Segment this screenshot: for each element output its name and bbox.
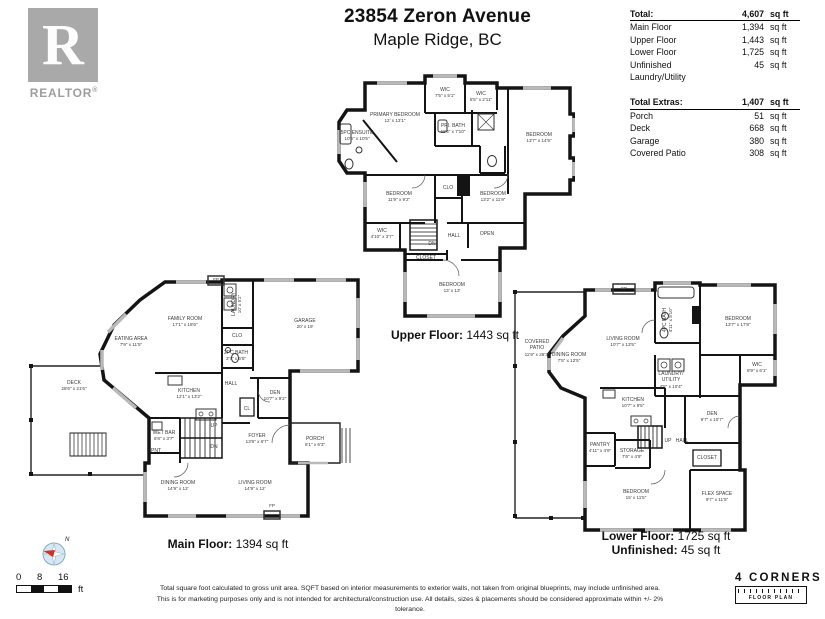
- scale-unit: ft: [78, 584, 83, 595]
- room-label: WIC7'5" x 5'1": [435, 87, 455, 99]
- room-label: 5PC ENSUITE10'6" x 10'5": [341, 130, 374, 142]
- table-row: Deck668sq ft: [630, 122, 800, 134]
- room-label: FP: [269, 503, 275, 509]
- lower-floor-plan: COVERED PATIO11'9" x 26'3" DINING ROOM7'…: [505, 276, 777, 556]
- realtor-logo: R REALTOR®: [28, 8, 100, 100]
- area-summary-table: Total: 4,607 sq ft Main Floor1,394sq ft …: [630, 8, 800, 159]
- main-floor-drawing: [28, 270, 378, 562]
- room-label: BEDROOM13'2" x 11'9": [480, 191, 506, 203]
- room-label: FLEX SPACE9'7" x 11'5": [702, 491, 732, 503]
- registered-mark: ®: [92, 87, 98, 94]
- room-label: BEDROOM11'9" x 9'2": [386, 191, 412, 203]
- room-label: BEDROOM15' x 11'5": [623, 489, 649, 501]
- four-corners-sub: FLOOR PLAN: [736, 595, 806, 601]
- chimney: [457, 176, 470, 196]
- lower-floor-caption: Lower Floor: 1725 sq ft Unfinished: 45 s…: [560, 530, 772, 557]
- room-label: WET BAR6'8" x 3'7": [153, 430, 176, 442]
- table-row: Porch51sq ft: [630, 110, 800, 122]
- room-label: HALL: [225, 381, 238, 387]
- room-label: BEDROOM13'7" x 14'9": [526, 132, 552, 144]
- chimney: [692, 306, 700, 324]
- room-label: DEN10'7" x 9'2": [264, 390, 287, 402]
- room-label: PORCH8'1" x 6'3": [305, 436, 325, 448]
- room-label: DN: [210, 444, 217, 450]
- room-label: FP: [621, 286, 627, 292]
- room-label: DINING ROOM7'5" x 12'5": [552, 352, 586, 364]
- compass-north-label: N: [65, 537, 69, 543]
- ruler-ticks-icon: [738, 589, 804, 593]
- room-label: CLO: [232, 333, 242, 339]
- room-label: OPEN: [480, 231, 494, 237]
- room-label: GARAGE20' x 19': [294, 318, 315, 330]
- city-line: Maple Ridge, BC: [250, 30, 625, 50]
- realtor-logo-icon: R: [28, 8, 98, 82]
- room-label: DN: [428, 241, 435, 247]
- page-title: 23854 Zeron Avenue Maple Ridge, BC: [250, 6, 625, 50]
- room-label: COVERED PATIO11'9" x 26'3": [518, 339, 556, 357]
- scale-bar-graphic: [16, 585, 72, 593]
- table-row-total: Total: 4,607 sq ft: [630, 8, 800, 21]
- room-label: LIVING ROOM10'7" x 13'5": [606, 336, 639, 348]
- scale-tick-8: 8: [37, 572, 42, 583]
- main-floor-plan: FAMILY ROOM17'1" x 18'6" EATING AREA7'9"…: [28, 270, 378, 562]
- room-label: 2PC BATH3'7" x 6'5": [224, 350, 248, 362]
- room-label: FAMILY ROOM17'1" x 18'6": [168, 316, 202, 328]
- disclaimer-line-1: Total square foot calculated to gross un…: [145, 584, 675, 595]
- room-label: PRIMARY BEDROOM12' x 13'1": [370, 112, 420, 124]
- realtor-logo-text: REALTOR®: [28, 86, 100, 100]
- room-label: CL: [244, 406, 250, 412]
- room-label: CLOSET: [416, 255, 436, 261]
- scale-bar: 0 8 16 ft: [16, 572, 116, 593]
- room-label: EATING AREA7'9" x 11'5": [115, 336, 148, 348]
- room-label: 4PC BATH4'11" x 8'10": [662, 308, 674, 333]
- realtor-r: R: [42, 16, 84, 74]
- room-label: DINING ROOM14'9" x 12': [161, 480, 195, 492]
- room-label: WIC5'5" x 2'11": [470, 91, 492, 103]
- table-row: Lower Floor1,725sq ft: [630, 46, 800, 58]
- table-row: Upper Floor1,443sq ft: [630, 34, 800, 46]
- four-corners-logo: 4 CORNERS FLOOR PLAN: [735, 572, 807, 604]
- scale-tick-0: 0: [16, 572, 21, 583]
- room-label: WIC4'10" x 3'7": [371, 228, 394, 240]
- room-label: FOYER13'6" x 6'7": [246, 433, 269, 445]
- disclaimer-line-2: This is for marketing purposes only and …: [145, 595, 675, 616]
- compass-icon: N: [40, 538, 74, 570]
- room-label: HALL: [448, 233, 461, 239]
- exterior-walls: [100, 280, 358, 516]
- four-corners-box: FLOOR PLAN: [735, 586, 807, 604]
- room-label: PNT: [151, 448, 161, 454]
- room-label: PRI. BATH11'4" x 7'10": [441, 123, 466, 135]
- room-label: BEDROOM13' x 13': [439, 282, 465, 294]
- room-label: HALL: [676, 438, 689, 444]
- floor-plan-sheet: R REALTOR® 23854 Zeron Avenue Maple Ridg…: [0, 0, 825, 619]
- four-corners-name: 4 CORNERS: [735, 572, 807, 584]
- table-row: Covered Patio308sq ft: [630, 147, 800, 159]
- address-line: 23854 Zeron Avenue: [250, 6, 625, 28]
- room-label: FP: [213, 277, 219, 283]
- scale-tick-16: 16: [58, 572, 69, 583]
- room-label: UP: [211, 423, 218, 429]
- room-label: CLOSET: [697, 455, 717, 461]
- table-row: Unfinished Laundry/Utility45sq ft: [630, 59, 800, 84]
- room-label: BEDROOM13'7" x 17'8": [725, 316, 751, 328]
- table-row-extras-total: Total Extras: 1,407 sq ft: [630, 96, 800, 109]
- room-label: KITCHEN12'1" x 13'2": [176, 388, 201, 400]
- room-label: STORAGE7'6" x 4'9": [620, 448, 644, 460]
- room-label: KITCHEN10'7" x 9'5": [622, 397, 645, 409]
- table-row: Main Floor1,394sq ft: [630, 21, 800, 33]
- room-label: LAUNDRY/ UTILITY4'5" x 10'4": [652, 371, 690, 389]
- room-label: LAUNDRY10' x 5'2": [231, 292, 243, 316]
- room-label: UP: [665, 438, 672, 444]
- room-label: LIVING ROOM14'9" x 12': [238, 480, 271, 492]
- main-floor-caption: Main Floor: 1394 sq ft: [118, 538, 338, 552]
- table-row: Garage380sq ft: [630, 135, 800, 147]
- room-label: PANTRY4'11" x 4'9": [589, 442, 611, 454]
- room-label: WIC8'9" x 6'1": [747, 362, 767, 374]
- room-label: CLO: [443, 185, 453, 191]
- room-label: DEN9'7" x 10'7": [701, 411, 724, 423]
- room-label: DECK28'6" x 21'6": [61, 380, 86, 392]
- disclaimer: Total square foot calculated to gross un…: [145, 584, 675, 616]
